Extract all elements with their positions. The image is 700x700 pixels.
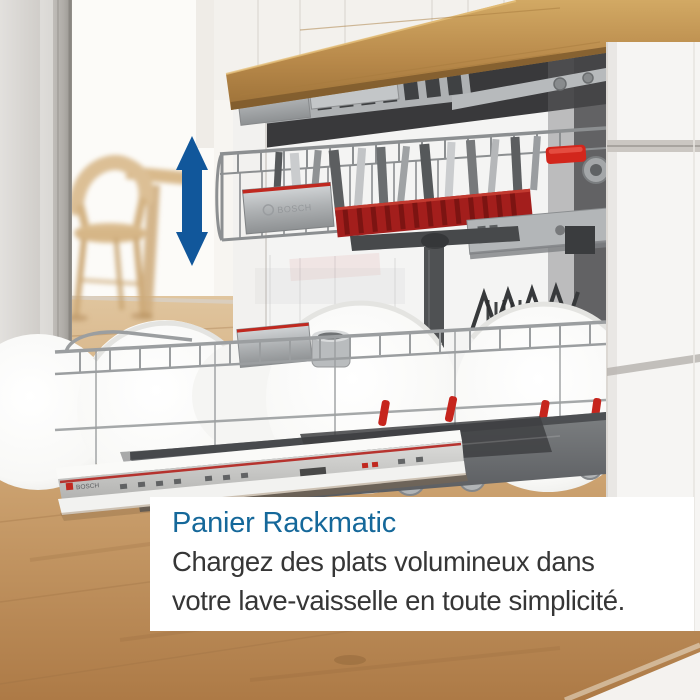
product-feature-image: BOSCH [0, 0, 700, 700]
rackmatic-handle [545, 144, 586, 164]
caption-card: Panier Rackmatic Chargez des plats volum… [150, 497, 694, 631]
rack-accessory-box: BOSCH [243, 182, 334, 234]
caption-line-2: votre lave-vaisselle en toute simplicité… [172, 582, 694, 621]
caption-line-1: Chargez des plats volumineux dans [172, 543, 694, 582]
caption-body: Chargez des plats volumineux dans votre … [172, 543, 694, 620]
caption-title: Panier Rackmatic [172, 506, 694, 540]
